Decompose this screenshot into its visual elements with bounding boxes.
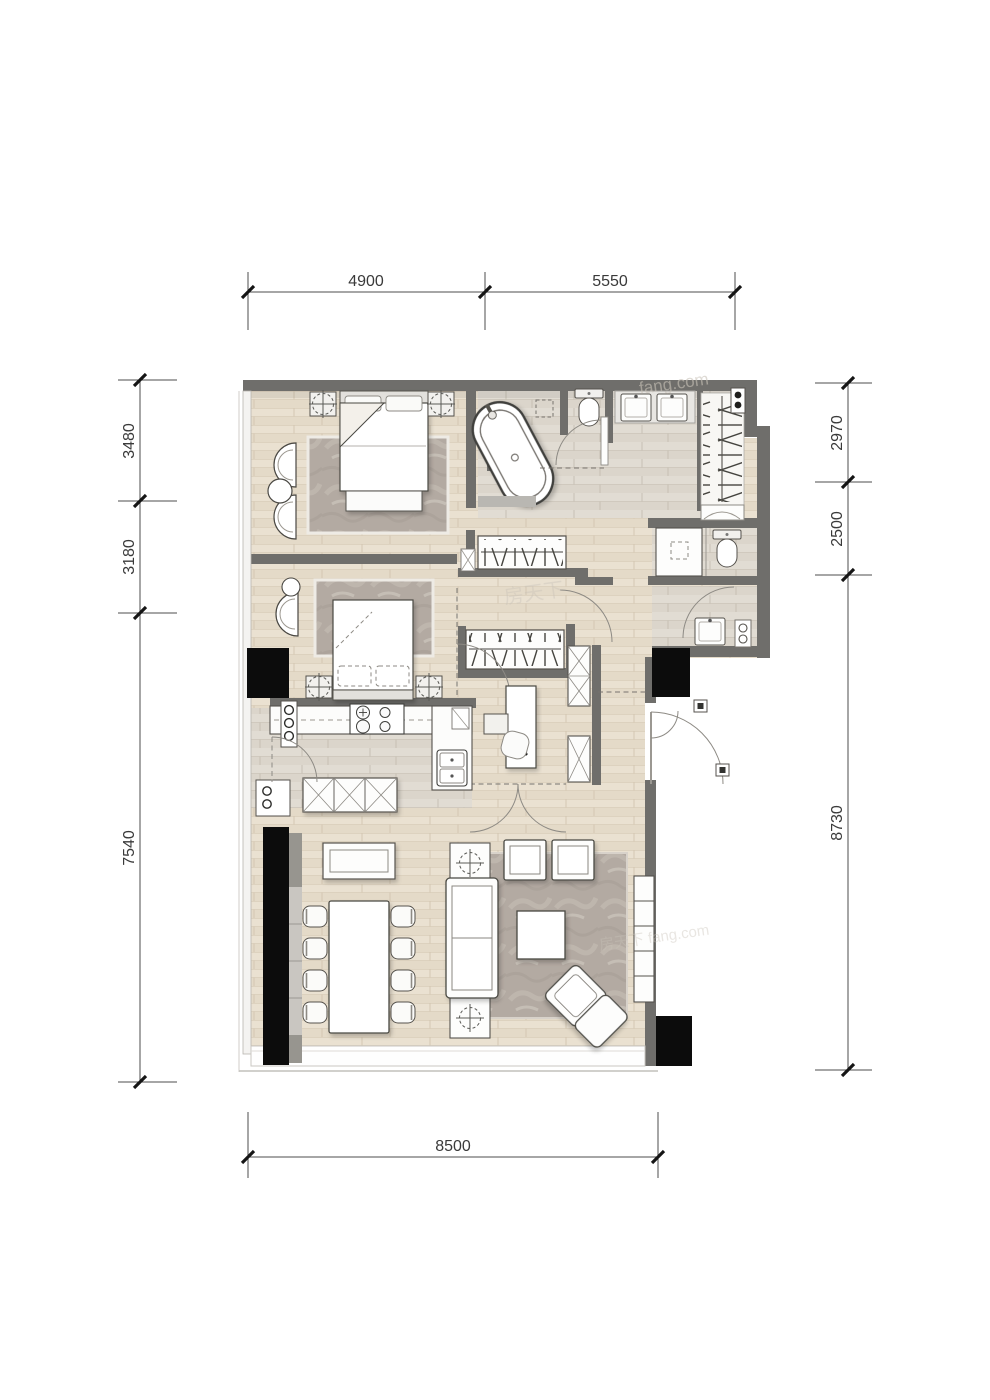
sideboard (323, 843, 395, 879)
wall-shower-bottom (648, 576, 757, 585)
wall-study-right (592, 645, 601, 785)
pillow (386, 396, 422, 411)
desk-return (484, 714, 508, 734)
pillow (376, 666, 409, 686)
tub-ledge (478, 496, 536, 507)
dim-left-1: 3480 (121, 423, 138, 459)
dim-top-1: 4900 (348, 273, 384, 290)
bedroom2-bed (333, 600, 413, 700)
floor-plan-drawing: 4900 5550 8500 3480 3180 7540 2970 2500 … (0, 0, 990, 1400)
wall-wardrobe-a-step (575, 577, 613, 585)
dining-table (329, 901, 389, 1033)
dim-right-1: 2970 (829, 415, 846, 451)
kitchen-sink (437, 750, 467, 786)
entry-door-arc (651, 712, 723, 784)
side-table (268, 479, 292, 503)
vanity-sink (621, 394, 651, 421)
dim-right-2: 2500 (829, 511, 846, 547)
powder-sink (695, 618, 725, 645)
tv-wall-shelving (289, 833, 302, 1063)
wall-wardrobe-b-left (458, 626, 466, 678)
dim-top-2: 5550 (592, 273, 628, 290)
dim-left-3: 7540 (121, 830, 138, 866)
wall-wc-left (560, 391, 568, 435)
coffee-table (517, 911, 565, 959)
side-table (282, 578, 300, 596)
vanity-sink (657, 394, 687, 421)
floor-plan-canvas: 4900 5550 8500 3480 3180 7540 2970 2500 … (0, 0, 990, 1400)
column-entry (652, 648, 690, 697)
floor-step (744, 438, 758, 528)
sofa (446, 878, 498, 998)
bed-bench (346, 491, 422, 511)
wall-master-bath-left (466, 391, 476, 508)
tv-shelf-top (289, 833, 302, 887)
pillow (338, 666, 371, 686)
door-leaf (601, 417, 608, 465)
dim-right-3: 8730 (829, 805, 846, 841)
dim-left-2: 3180 (121, 539, 138, 575)
master-bed (340, 391, 428, 511)
wall-left-glass (243, 391, 251, 1054)
column-kitchen (247, 648, 289, 698)
low-cabinet (256, 780, 290, 816)
headboard (333, 690, 413, 700)
column-living-corner (656, 1016, 692, 1066)
shower-tray (656, 528, 702, 576)
wall-bedrooms-divider (243, 554, 457, 564)
dim-bottom-1: 8500 (435, 1138, 471, 1155)
wall-right-mid (757, 426, 770, 658)
tv-wall-black (263, 827, 289, 1065)
window-band-bottom (251, 1046, 645, 1066)
entry (645, 700, 729, 784)
tv-shelf-bottom (289, 1035, 302, 1063)
